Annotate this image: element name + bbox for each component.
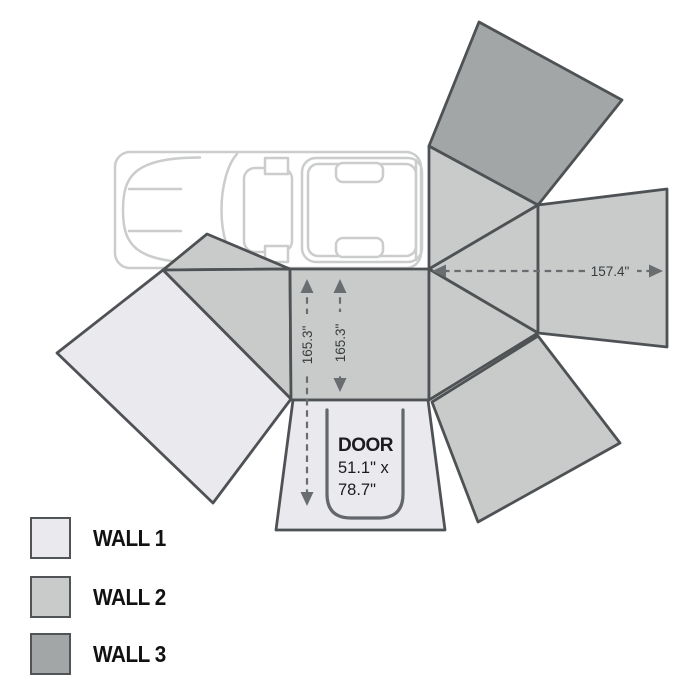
- vehicle-top-view: [115, 152, 422, 268]
- dimension-vertical-outer-label: 165.3": [300, 326, 315, 365]
- door-label: DOOR: [338, 435, 394, 456]
- wall3-label: WALL 3: [93, 641, 166, 668]
- legend-row-wall2: WALL 2: [30, 576, 174, 618]
- door-size-line2: 78.7": [338, 481, 376, 499]
- dimension-horizontal-label: 157.4": [591, 264, 630, 279]
- legend-row-wall3: WALL 3: [30, 633, 174, 675]
- wall3-swatch: [30, 633, 71, 675]
- wall2-label: WALL 2: [93, 584, 166, 611]
- dimension-vertical-inner-label: 165.3": [333, 324, 348, 363]
- vehicle-mirror-top: [265, 158, 288, 174]
- door-size-line1: 51.1" x: [338, 459, 390, 477]
- vehicle-bed-tab-top: [336, 163, 383, 182]
- vehicle-cab-roof: [244, 168, 292, 252]
- wall2-swatch: [30, 576, 71, 618]
- wall1-label: WALL 1: [93, 525, 166, 552]
- vehicle-bed-tab-bottom: [336, 238, 383, 257]
- wall1-swatch: [30, 517, 71, 559]
- awning-wall-diagram: DOOR 51.1" x 78.7" 157.4" 165.3" 165.3": [0, 0, 700, 700]
- legend-row-wall1: WALL 1: [30, 517, 174, 559]
